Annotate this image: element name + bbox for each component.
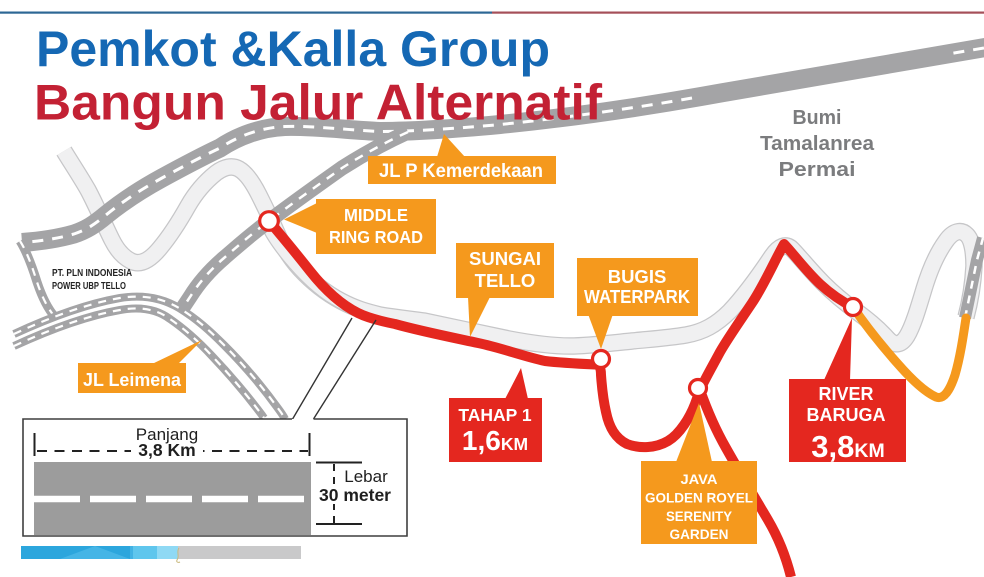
svg-text:RIVER: RIVER — [818, 384, 873, 404]
svg-text:Lebar: Lebar — [344, 467, 388, 486]
svg-text:JAVA: JAVA — [681, 471, 718, 487]
svg-text:TELLO: TELLO — [475, 270, 536, 291]
svg-text:RING ROAD: RING ROAD — [329, 227, 423, 247]
svg-text:SERENITY: SERENITY — [666, 508, 733, 524]
svg-text:SUNGAI: SUNGAI — [469, 248, 541, 269]
svg-text:GARDEN: GARDEN — [670, 526, 729, 542]
svg-text:PT. PLN INDONESIA: PT. PLN INDONESIA — [52, 267, 132, 279]
svg-text:BARUGA: BARUGA — [807, 405, 886, 425]
svg-text:3,8 Km: 3,8 Km — [138, 440, 195, 460]
svg-text:JL P Kemerdekaan: JL P Kemerdekaan — [379, 161, 543, 182]
svg-text:30 meter: 30 meter — [319, 485, 391, 505]
svg-text:Permai: Permai — [779, 159, 856, 181]
svg-text:TAHAP 1: TAHAP 1 — [458, 405, 532, 425]
svg-text:POWER UBP TELLO: POWER UBP TELLO — [52, 280, 126, 292]
svg-text:BUGIS: BUGIS — [608, 266, 667, 287]
svg-text:Bumi: Bumi — [793, 107, 842, 129]
svg-text:MIDDLE: MIDDLE — [344, 205, 408, 225]
svg-text:GOLDEN ROYEL: GOLDEN ROYEL — [645, 490, 753, 506]
svg-text:WATERPARK: WATERPARK — [584, 287, 690, 307]
svg-text:Pemkot &Kalla Group: Pemkot &Kalla Group — [36, 21, 550, 77]
svg-text:Bangun Jalur Alternatif: Bangun Jalur Alternatif — [34, 75, 602, 131]
svg-text:Tamalanrea: Tamalanrea — [760, 133, 875, 155]
svg-text:JL Leimena: JL Leimena — [83, 369, 182, 390]
